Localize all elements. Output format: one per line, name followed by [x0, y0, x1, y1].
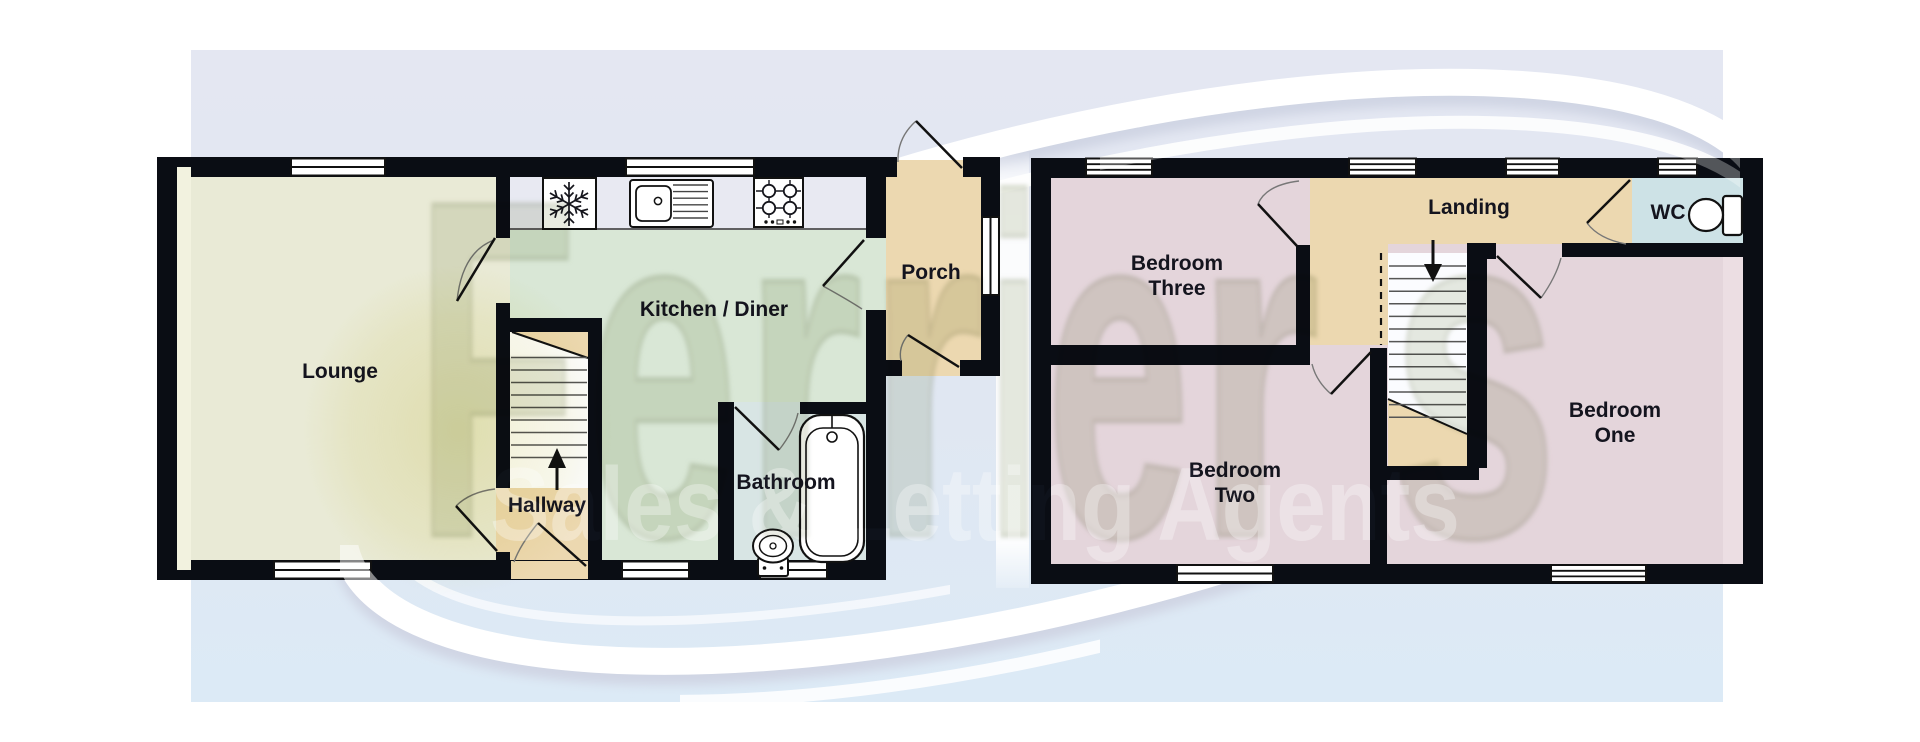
svg-text:WC: WC: [1651, 201, 1686, 224]
svg-text:Bedroom: Bedroom: [1569, 399, 1661, 422]
svg-text:Sales & Letting Agents: Sales & Letting Agents: [490, 447, 1460, 563]
svg-text:One: One: [1595, 424, 1636, 447]
